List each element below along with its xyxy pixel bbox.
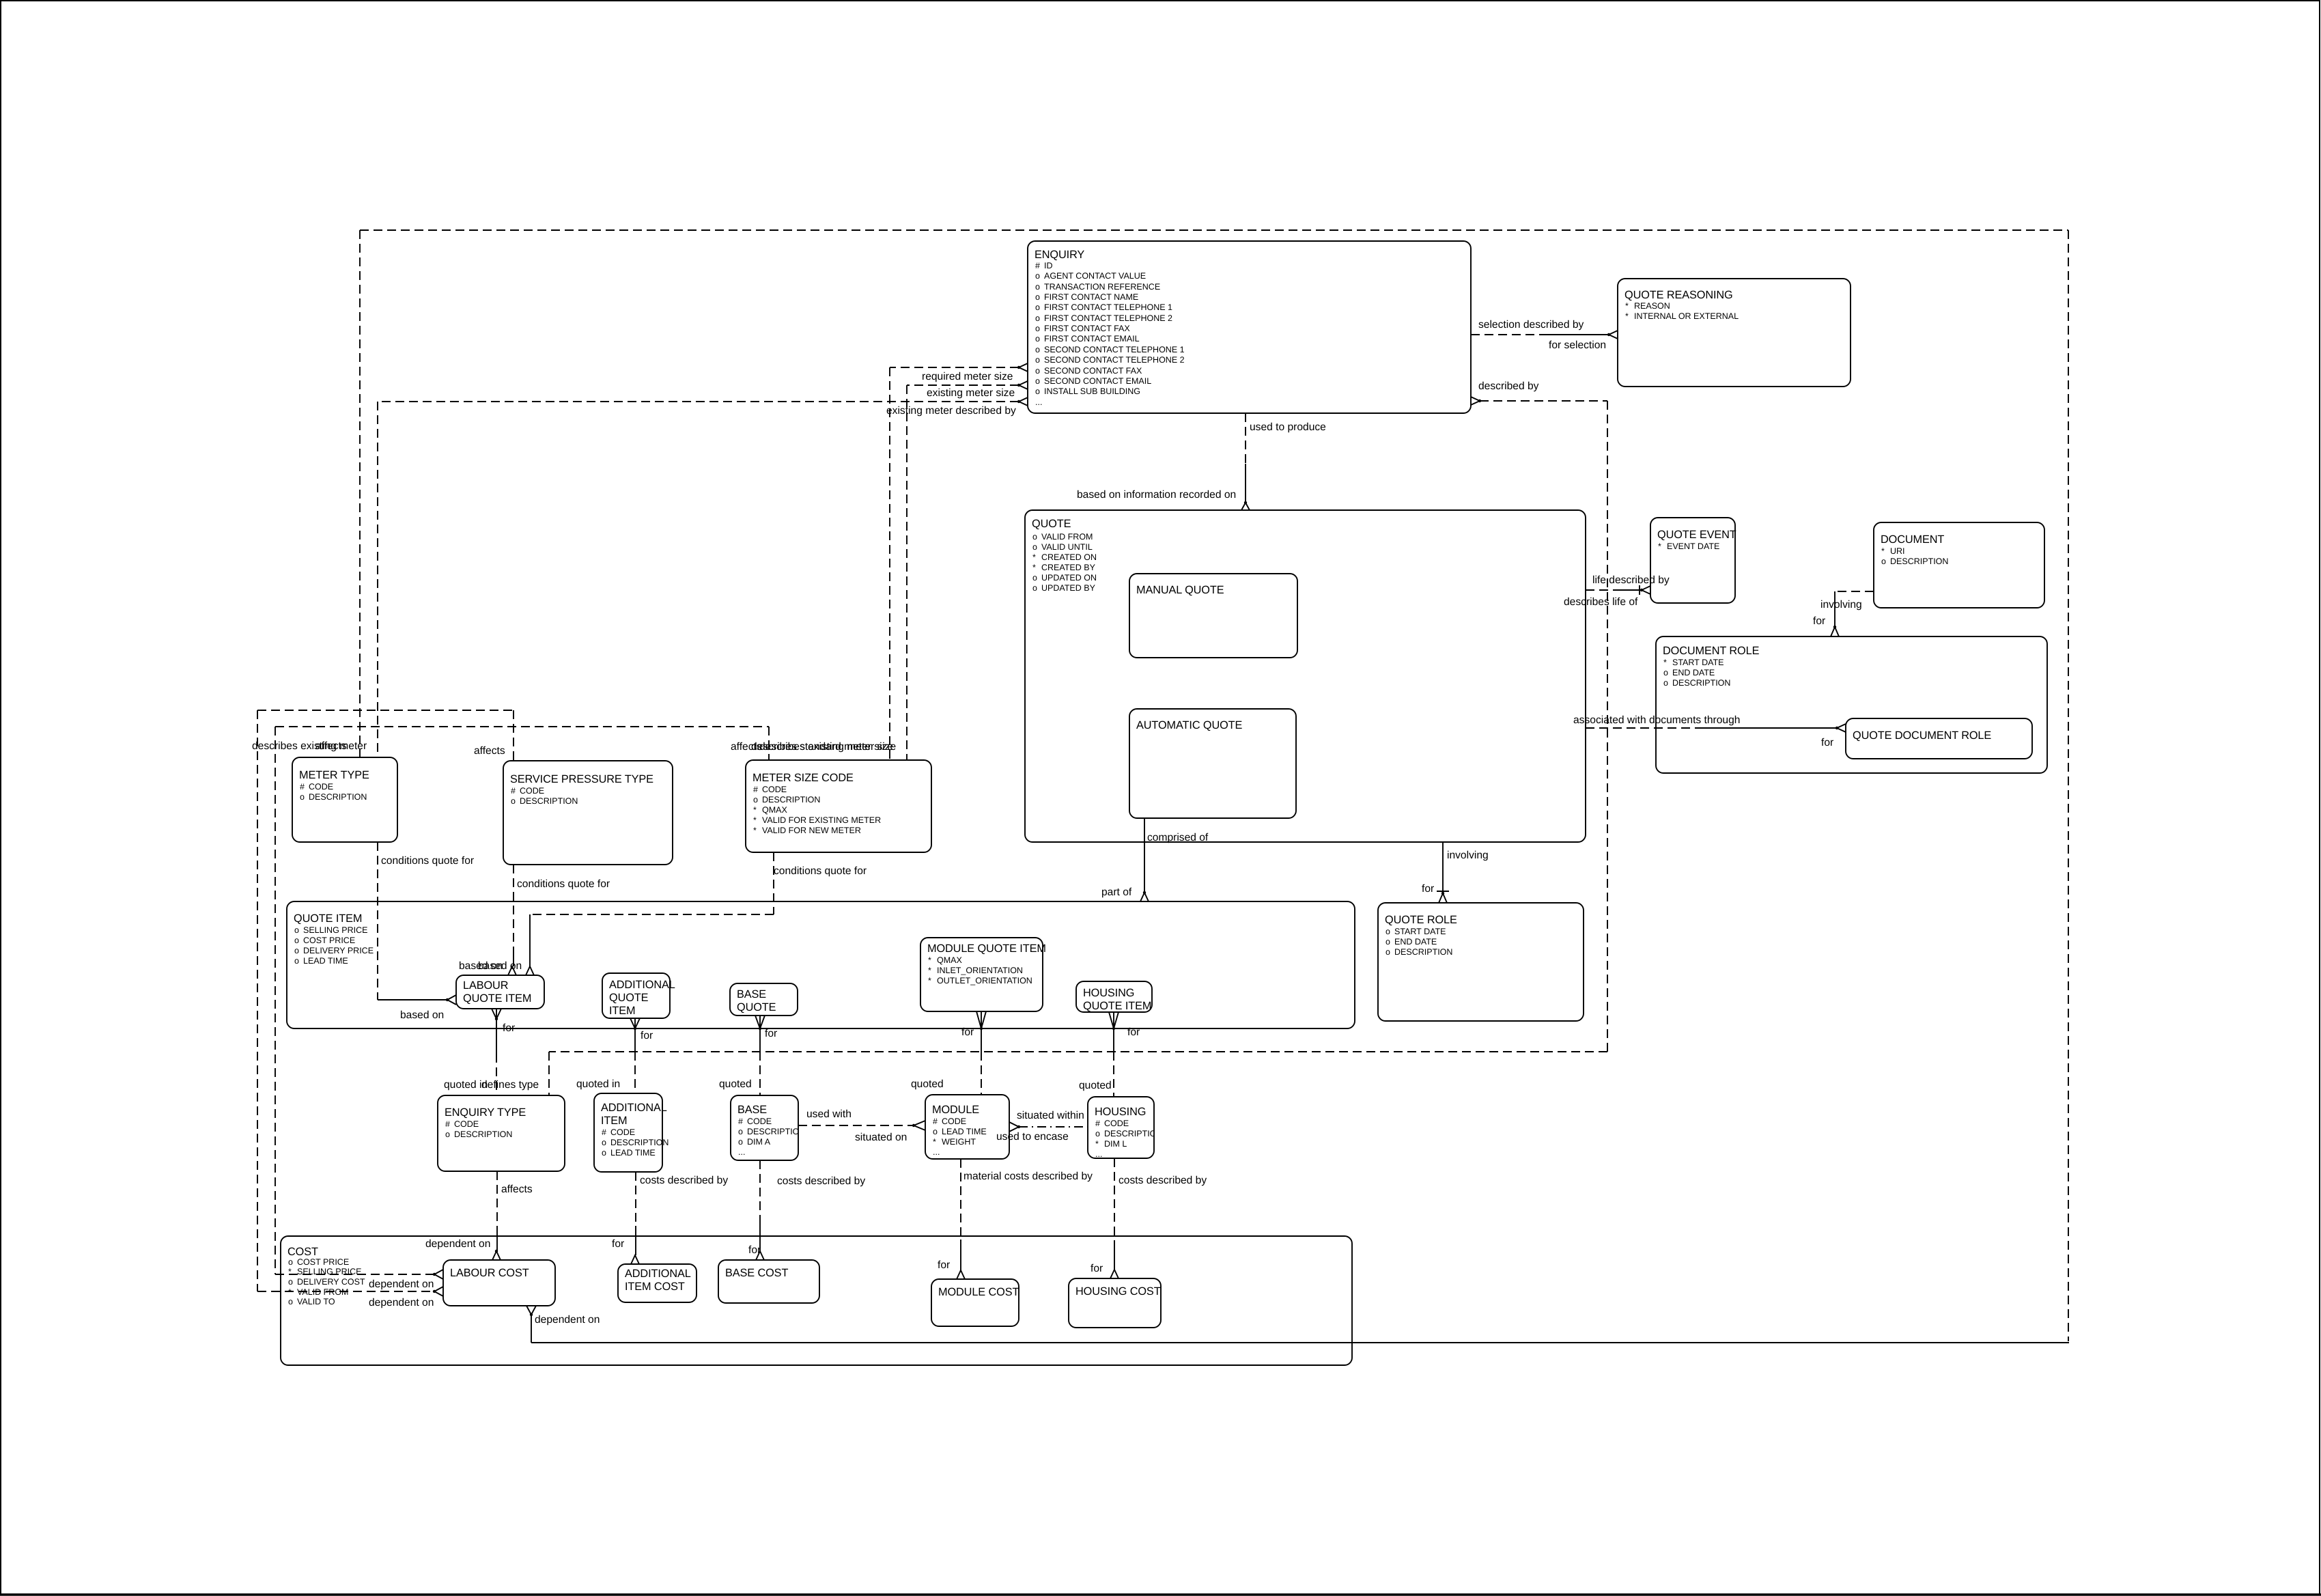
svg-text:oSECOND CONTACT FAX: oSECOND CONTACT FAX: [1035, 366, 1142, 376]
svg-text:DOCUMENT: DOCUMENT: [1881, 533, 1944, 546]
svg-text:AUTOMATIC QUOTE: AUTOMATIC QUOTE: [1136, 719, 1243, 731]
svg-text:comprised of: comprised of: [1147, 832, 1209, 843]
svg-text:QUOTE ITEM: QUOTE ITEM: [463, 992, 531, 1005]
svg-text:conditions quote for: conditions quote for: [381, 855, 474, 867]
svg-text:for: for: [612, 1238, 624, 1250]
svg-text:oFIRST CONTACT EMAIL: oFIRST CONTACT EMAIL: [1035, 334, 1140, 344]
svg-text:oTRANSACTION REFERENCE: oTRANSACTION REFERENCE: [1035, 282, 1160, 292]
svg-text:life described by: life described by: [1592, 574, 1670, 586]
svg-text:selection described by: selection described by: [1478, 319, 1584, 331]
svg-text:QUOTE EVENT: QUOTE EVENT: [1657, 529, 1736, 541]
svg-text:oDESCRIPTION: oDESCRIPTION: [738, 1127, 805, 1136]
svg-text:MODULE: MODULE: [932, 1104, 979, 1116]
svg-text:affects: affects: [501, 1184, 533, 1195]
svg-text:describes life of: describes life of: [1564, 596, 1638, 608]
svg-text:METER SIZE CODE: METER SIZE CODE: [752, 772, 854, 784]
svg-text:*VALID FOR NEW METER: *VALID FOR NEW METER: [753, 826, 861, 835]
svg-text:describes existing meter size: describes existing meter size: [759, 741, 896, 753]
svg-text:...: ...: [933, 1147, 940, 1157]
svg-text:...: ...: [738, 1147, 745, 1157]
svg-text:oSECOND CONTACT EMAIL: oSECOND CONTACT EMAIL: [1035, 376, 1151, 386]
svg-text:oCOST PRICE: oCOST PRICE: [294, 936, 355, 945]
svg-text:...: ...: [1035, 397, 1042, 407]
svg-text:dependent on: dependent on: [535, 1314, 600, 1326]
svg-text:BASE: BASE: [737, 988, 766, 1000]
svg-text:oUPDATED BY: oUPDATED BY: [1032, 583, 1096, 593]
svg-text:for: for: [938, 1259, 950, 1271]
svg-text:for: for: [961, 1026, 974, 1038]
svg-text:QUOTE ITEM: QUOTE ITEM: [1083, 1000, 1151, 1012]
svg-text:oDESCRIPTION: oDESCRIPTION: [1095, 1129, 1162, 1138]
svg-text:MODULE QUOTE ITEM: MODULE QUOTE ITEM: [927, 942, 1046, 955]
svg-text:affects: affects: [315, 740, 347, 752]
svg-text:based on information recorded: based on information recorded on: [1077, 489, 1236, 501]
svg-text:oAGENT CONTACT VALUE: oAGENT CONTACT VALUE: [1035, 271, 1146, 281]
svg-text:for: for: [765, 1028, 777, 1039]
svg-text:MANUAL QUOTE: MANUAL QUOTE: [1136, 584, 1224, 596]
svg-text:conditions quote for: conditions quote for: [517, 878, 610, 890]
svg-text:dependent on: dependent on: [369, 1278, 434, 1290]
svg-text:existing meter described by: existing meter described by: [886, 405, 1016, 417]
svg-text:*VALID FOR EXISTING METER: *VALID FOR EXISTING METER: [753, 815, 881, 825]
svg-text:used to encase: used to encase: [996, 1131, 1069, 1143]
svg-text:BASE: BASE: [737, 1104, 767, 1116]
svg-text:defines type: defines type: [481, 1079, 539, 1091]
svg-text:associated with documents thro: associated with documents through: [1573, 714, 1740, 726]
svg-text:*CREATED ON: *CREATED ON: [1032, 552, 1097, 562]
svg-text:oDESCRIPTION: oDESCRIPTION: [300, 792, 367, 802]
svg-text:based on: based on: [400, 1009, 444, 1021]
svg-text:QUOTE: QUOTE: [737, 1001, 776, 1013]
svg-text:for: for: [1127, 1026, 1140, 1038]
svg-text:ITEM COST: ITEM COST: [625, 1280, 685, 1293]
svg-text:existing meter size: existing meter size: [927, 387, 1015, 399]
svg-text:costs described by: costs described by: [777, 1175, 865, 1187]
svg-text:oDELIVERY PRICE: oDELIVERY PRICE: [294, 946, 374, 955]
svg-text:used with: used with: [806, 1108, 852, 1120]
svg-text:QUOTE ITEM: QUOTE ITEM: [294, 912, 362, 925]
svg-text:dependent on: dependent on: [425, 1238, 490, 1250]
svg-text:describes existing meter: describes existing meter: [252, 740, 367, 752]
svg-text:required meter size: required meter size: [922, 371, 1013, 382]
svg-text:*OUTLET_ORIENTATION: *OUTLET_ORIENTATION: [928, 976, 1032, 985]
svg-text:oDESCRIPTION: oDESCRIPTION: [1881, 557, 1948, 566]
svg-text:oDESCRIPTION: oDESCRIPTION: [753, 795, 820, 804]
svg-text:for: for: [748, 1244, 761, 1256]
svg-text:HOUSING COST: HOUSING COST: [1075, 1285, 1161, 1298]
svg-text:for: for: [1422, 883, 1434, 895]
svg-text:SERVICE PRESSURE TYPE: SERVICE PRESSURE TYPE: [510, 773, 653, 785]
svg-text:oUPDATED ON: oUPDATED ON: [1032, 573, 1097, 583]
svg-text:#ID: #ID: [1035, 261, 1053, 270]
svg-text:ITEM: ITEM: [609, 1005, 636, 1017]
svg-text:oDESCRIPTION: oDESCRIPTION: [445, 1130, 512, 1139]
svg-text:HOUSING: HOUSING: [1083, 987, 1134, 999]
svg-text:based on: based on: [478, 960, 522, 972]
svg-text:situated within: situated within: [1017, 1110, 1084, 1121]
svg-text:dependent on: dependent on: [369, 1297, 434, 1308]
svg-text:situated on: situated on: [855, 1132, 907, 1143]
svg-text:used to produce: used to produce: [1250, 421, 1326, 433]
svg-text:oSECOND CONTACT TELEPHONE 1: oSECOND CONTACT TELEPHONE 1: [1035, 345, 1185, 354]
svg-text:QUOTE REASONING: QUOTE REASONING: [1624, 289, 1733, 301]
svg-text:oDESCRIPTION: oDESCRIPTION: [1385, 947, 1452, 957]
svg-text:*SELLING PRICE: *SELLING PRICE: [288, 1267, 361, 1276]
svg-text:*START DATE: *START DATE: [1663, 658, 1724, 667]
svg-text:...: ...: [1095, 1149, 1102, 1159]
svg-text:part of: part of: [1101, 886, 1132, 898]
svg-text:conditions quote for: conditions quote for: [774, 865, 867, 877]
svg-text:for: for: [503, 1022, 515, 1034]
svg-text:METER TYPE: METER TYPE: [299, 769, 369, 781]
svg-text:quoted: quoted: [1079, 1080, 1112, 1091]
svg-text:oVALID UNTIL: oVALID UNTIL: [1032, 542, 1093, 552]
svg-text:*INLET_ORIENTATION: *INLET_ORIENTATION: [928, 966, 1023, 975]
svg-text:oFIRST CONTACT NAME: oFIRST CONTACT NAME: [1035, 292, 1138, 302]
svg-text:MODULE COST: MODULE COST: [938, 1286, 1019, 1298]
svg-text:oSECOND CONTACT TELEPHONE 2: oSECOND CONTACT TELEPHONE 2: [1035, 355, 1185, 365]
svg-text:material costs described by: material costs described by: [963, 1171, 1093, 1182]
svg-text:COST: COST: [287, 1246, 318, 1258]
svg-text:oDESCRIPTION: oDESCRIPTION: [1663, 678, 1730, 688]
svg-text:for: for: [1813, 615, 1825, 627]
svg-text:for selection: for selection: [1549, 339, 1606, 351]
svg-text:quoted: quoted: [719, 1078, 752, 1090]
svg-text:HOUSING: HOUSING: [1095, 1106, 1146, 1118]
svg-text:LABOUR: LABOUR: [463, 979, 508, 992]
svg-text:oDESCRIPTION: oDESCRIPTION: [511, 796, 578, 806]
svg-text:oSELLING PRICE: oSELLING PRICE: [294, 925, 367, 935]
svg-text:involving: involving: [1447, 850, 1489, 861]
svg-text:involving: involving: [1820, 599, 1862, 611]
svg-text:QUOTE: QUOTE: [1032, 518, 1071, 530]
svg-text:oSTART DATE: oSTART DATE: [1385, 927, 1446, 936]
svg-text:oFIRST CONTACT TELEPHONE 1: oFIRST CONTACT TELEPHONE 1: [1035, 303, 1172, 312]
svg-text:*VALID FROM: *VALID FROM: [288, 1287, 348, 1297]
svg-text:ENQUIRY TYPE: ENQUIRY TYPE: [445, 1106, 526, 1119]
svg-text:DOCUMENT ROLE: DOCUMENT ROLE: [1663, 645, 1760, 657]
svg-text:QUOTE DOCUMENT ROLE: QUOTE DOCUMENT ROLE: [1853, 729, 1991, 742]
svg-text:quoted: quoted: [911, 1078, 944, 1090]
svg-text:affects: affects: [474, 745, 505, 757]
svg-text:ENQUIRY: ENQUIRY: [1035, 249, 1084, 261]
svg-text:described by: described by: [1478, 380, 1539, 392]
svg-text:ITEM: ITEM: [601, 1115, 628, 1127]
svg-text:ADDITIONAL: ADDITIONAL: [609, 979, 675, 991]
svg-text:quoted in: quoted in: [576, 1078, 620, 1090]
svg-text:for: for: [1821, 737, 1833, 748]
svg-text:costs described by: costs described by: [1119, 1175, 1207, 1186]
svg-text:oCOST PRICE: oCOST PRICE: [288, 1257, 349, 1267]
svg-text:for: for: [641, 1030, 653, 1041]
svg-text:oVALID FROM: oVALID FROM: [1032, 532, 1093, 542]
svg-text:ADDITIONAL: ADDITIONAL: [601, 1102, 667, 1114]
svg-text:*EVENT DATE: *EVENT DATE: [1658, 542, 1719, 551]
svg-text:oDESCRIPTION: oDESCRIPTION: [602, 1138, 669, 1147]
svg-text:*INTERNAL OR EXTERNAL: *INTERNAL OR EXTERNAL: [1625, 311, 1739, 321]
svg-text:oINSTALL SUB BUILDING: oINSTALL SUB BUILDING: [1035, 387, 1140, 396]
svg-text:LABOUR COST: LABOUR COST: [450, 1267, 529, 1279]
svg-text:oDELIVERY COST: oDELIVERY COST: [288, 1277, 365, 1287]
svg-text:QUOTE: QUOTE: [609, 992, 649, 1004]
svg-text:oFIRST CONTACT FAX: oFIRST CONTACT FAX: [1035, 324, 1130, 333]
svg-text:oFIRST CONTACT TELEPHONE 2: oFIRST CONTACT TELEPHONE 2: [1035, 313, 1172, 323]
svg-text:QUOTE ROLE: QUOTE ROLE: [1385, 914, 1457, 926]
svg-text:*CREATED BY: *CREATED BY: [1032, 563, 1096, 572]
svg-text:for: for: [1091, 1263, 1103, 1274]
svg-text:ADDITIONAL: ADDITIONAL: [625, 1268, 691, 1280]
svg-text:costs described by: costs described by: [640, 1175, 728, 1186]
svg-text:BASE COST: BASE COST: [725, 1267, 788, 1279]
